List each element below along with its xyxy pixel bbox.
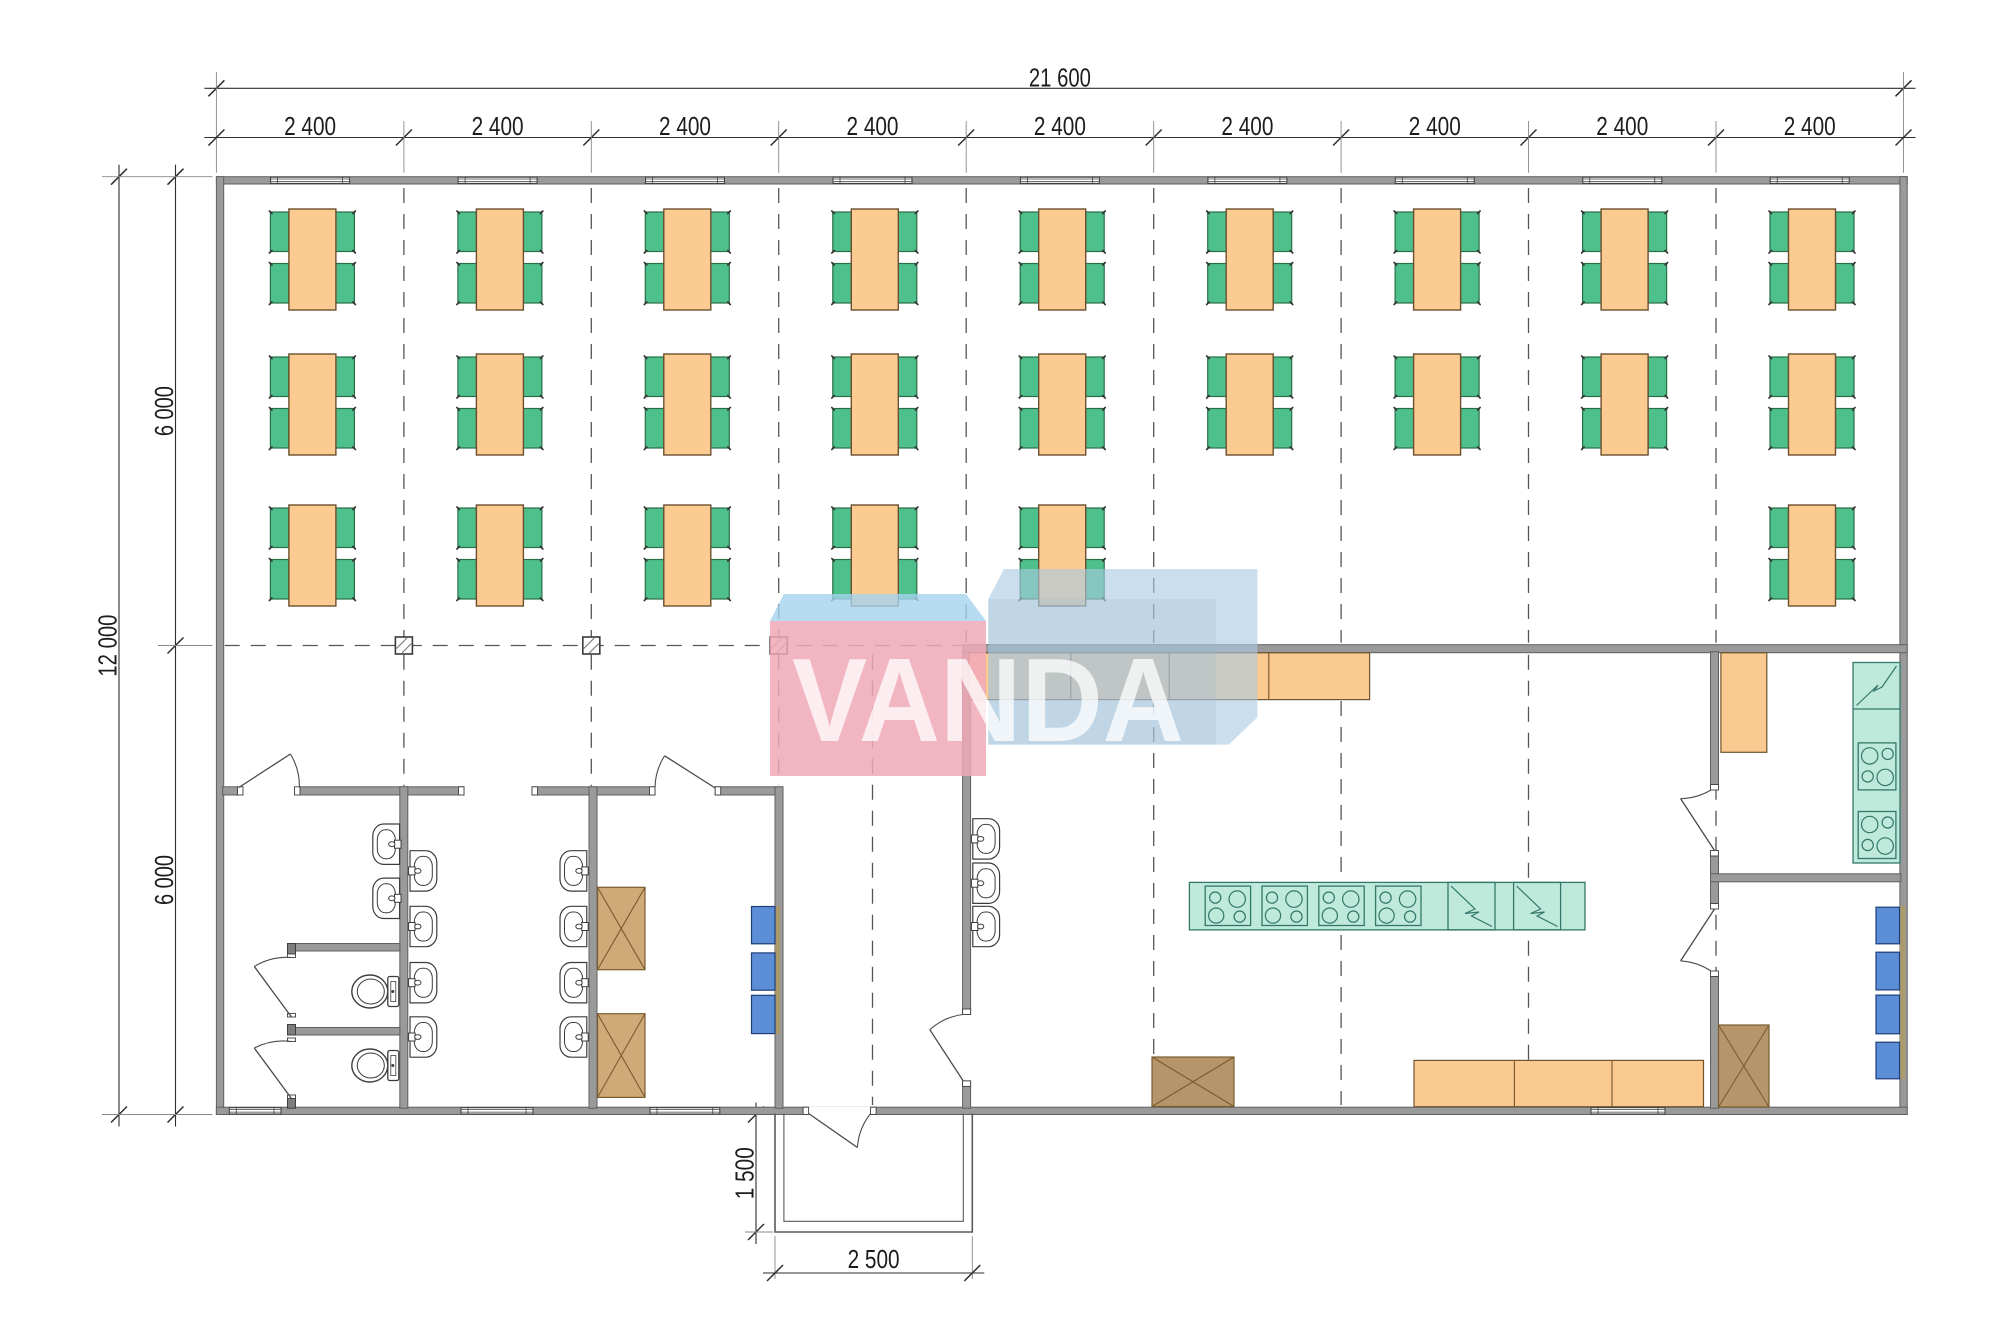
- svg-text:6 000: 6 000: [149, 855, 179, 905]
- svg-text:2 400: 2 400: [1409, 111, 1461, 141]
- svg-text:2 400: 2 400: [284, 111, 336, 141]
- svg-text:2 400: 2 400: [472, 111, 524, 141]
- svg-text:1 500: 1 500: [730, 1147, 760, 1199]
- svg-text:2 500: 2 500: [848, 1244, 900, 1274]
- svg-text:6 000: 6 000: [149, 386, 179, 436]
- svg-text:2 400: 2 400: [1221, 111, 1273, 141]
- svg-text:2 400: 2 400: [659, 111, 711, 141]
- svg-text:2 400: 2 400: [1034, 111, 1086, 141]
- svg-text:VANDA: VANDA: [792, 634, 1184, 767]
- svg-text:21 600: 21 600: [1029, 62, 1091, 92]
- svg-text:12 000: 12 000: [93, 615, 123, 677]
- svg-text:2 400: 2 400: [1784, 111, 1836, 141]
- svg-text:2 400: 2 400: [1596, 111, 1648, 141]
- svg-text:2 400: 2 400: [847, 111, 899, 141]
